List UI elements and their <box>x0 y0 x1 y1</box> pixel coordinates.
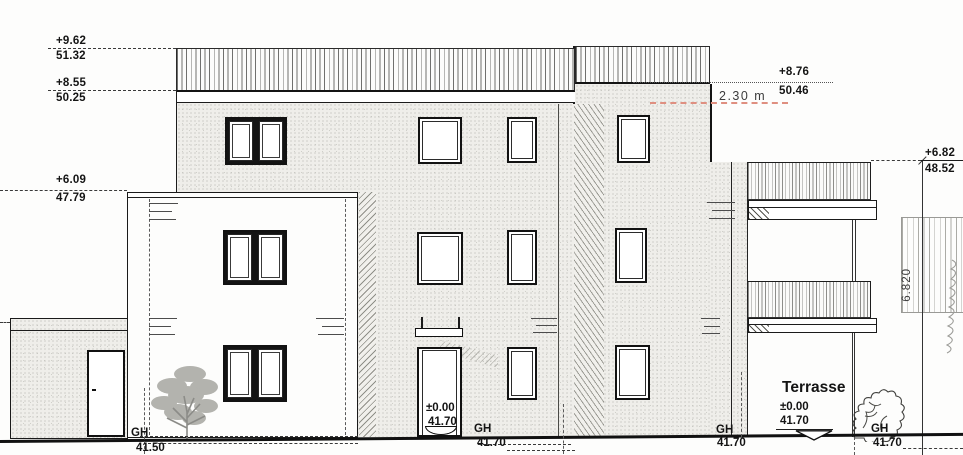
left-wing-parapet-line <box>128 197 357 198</box>
balcony-pillar <box>731 162 748 437</box>
garage-parapet-line <box>11 330 127 331</box>
balcony-railing-upper <box>748 162 871 200</box>
ground-mark-gh1-value: 41.50 <box>136 442 165 454</box>
roof-parapet-left <box>176 48 575 92</box>
level-label-876: +8.76 <box>779 66 809 78</box>
canopy-rod-left <box>421 317 423 328</box>
ground-mark-gh1-label: GH <box>131 427 148 439</box>
tick-mark <box>533 332 557 333</box>
level-label-855: +8.55 <box>56 77 86 89</box>
red-dashed-marker <box>650 102 788 104</box>
balcony-railing-lower <box>748 281 871 318</box>
tick-mark <box>531 318 557 319</box>
ground-dashed-v4 <box>854 437 855 455</box>
window-ground-2 <box>507 347 537 400</box>
level-label-962: +9.62 <box>56 35 86 47</box>
leader-682 <box>871 160 921 161</box>
section-line <box>558 104 559 437</box>
ground-mark-gh3-value: 41.70 <box>717 437 746 449</box>
window-mid-2 <box>507 230 537 285</box>
window-top-2 <box>418 117 462 164</box>
level-value-4779: 47.79 <box>56 192 86 204</box>
entrance-level-label: ±0.00 <box>426 402 455 414</box>
tick-mark <box>149 203 178 204</box>
dimension-value-6820: 6.820 <box>901 268 913 302</box>
level-label-609: +6.09 <box>56 174 86 186</box>
wing-junction-strip <box>359 192 376 437</box>
ground-dashed-2 <box>148 443 358 444</box>
leader-855 <box>48 90 176 91</box>
window-mid-wing <box>223 230 287 285</box>
roof-fascia <box>176 92 575 103</box>
leader-876 <box>633 82 833 83</box>
tick-mark <box>149 211 172 212</box>
tick-mark <box>322 326 344 327</box>
tick-mark <box>149 219 176 220</box>
tick-mark <box>707 202 735 203</box>
window-top-4 <box>617 115 650 163</box>
tick-mark <box>149 334 175 335</box>
terrace-level: ±0.00 <box>780 401 809 413</box>
tick-mark <box>712 210 735 211</box>
roof-parapet-right <box>575 46 710 84</box>
ground-dashed-v2 <box>563 404 564 454</box>
window-mid-3 <box>615 228 647 283</box>
tick-mark <box>704 326 720 327</box>
level-value-5025: 50.25 <box>56 92 86 104</box>
leader-962 <box>48 48 176 49</box>
ground-mark-gh4-value: 41.70 <box>873 437 902 449</box>
tick-mark <box>318 334 344 335</box>
tick-mark <box>701 318 720 319</box>
ground-mark-gh2-value: 41.70 <box>477 437 506 449</box>
elevation-drawing: ±0.00 41.70 6.820 <box>0 0 963 455</box>
level-label-682: +6.82 <box>925 147 955 159</box>
ground-dashed-1 <box>140 436 358 437</box>
leader-682-solid <box>921 160 963 161</box>
tick-mark <box>316 318 344 319</box>
leader-609 <box>0 190 127 191</box>
ground-mark-gh3-label: GH <box>716 424 733 436</box>
facade-recess-right <box>710 162 731 437</box>
tick-mark <box>709 218 735 219</box>
ground-mark-gh4-label: GH <box>871 423 888 435</box>
level-value-5046: 50.46 <box>779 85 809 97</box>
stairwell-strip <box>574 104 604 437</box>
level-value-4852: 48.52 <box>925 163 955 175</box>
window-top-3 <box>507 117 537 163</box>
dimension-line-vertical <box>922 161 923 455</box>
tick-mark <box>702 333 720 334</box>
garage-door <box>87 350 125 437</box>
tick-mark <box>149 318 177 319</box>
ground-mark-gh2-label: GH <box>474 423 491 435</box>
datum-triangle-icon <box>795 430 833 441</box>
canopy-rod-right <box>458 317 460 328</box>
terrace-title: Terrasse <box>782 379 845 397</box>
tick-mark <box>149 326 171 327</box>
window-top-1 <box>225 117 287 165</box>
terrace-absolute: 41.70 <box>780 415 809 427</box>
balcony-slab-upper-hatch <box>749 208 769 219</box>
wing-joint-dashed-right <box>345 199 346 435</box>
tree-graphic <box>140 362 236 442</box>
balcony-post <box>852 220 856 281</box>
level-value-5132: 51.32 <box>56 50 86 62</box>
window-mid-1 <box>417 232 463 285</box>
tick-mark <box>536 325 557 326</box>
ground-dashed-v3 <box>741 372 742 437</box>
ground-dashed-5 <box>903 448 963 449</box>
ground-dashed-4 <box>507 450 575 451</box>
entrance-canopy <box>415 328 463 337</box>
garage-dashed-leader <box>0 322 10 323</box>
window-ground-3 <box>615 345 650 400</box>
balcony-slab-lower-hatch <box>749 325 769 332</box>
garage-door-handle-icon <box>92 389 96 391</box>
scribble-graphic <box>946 258 963 354</box>
